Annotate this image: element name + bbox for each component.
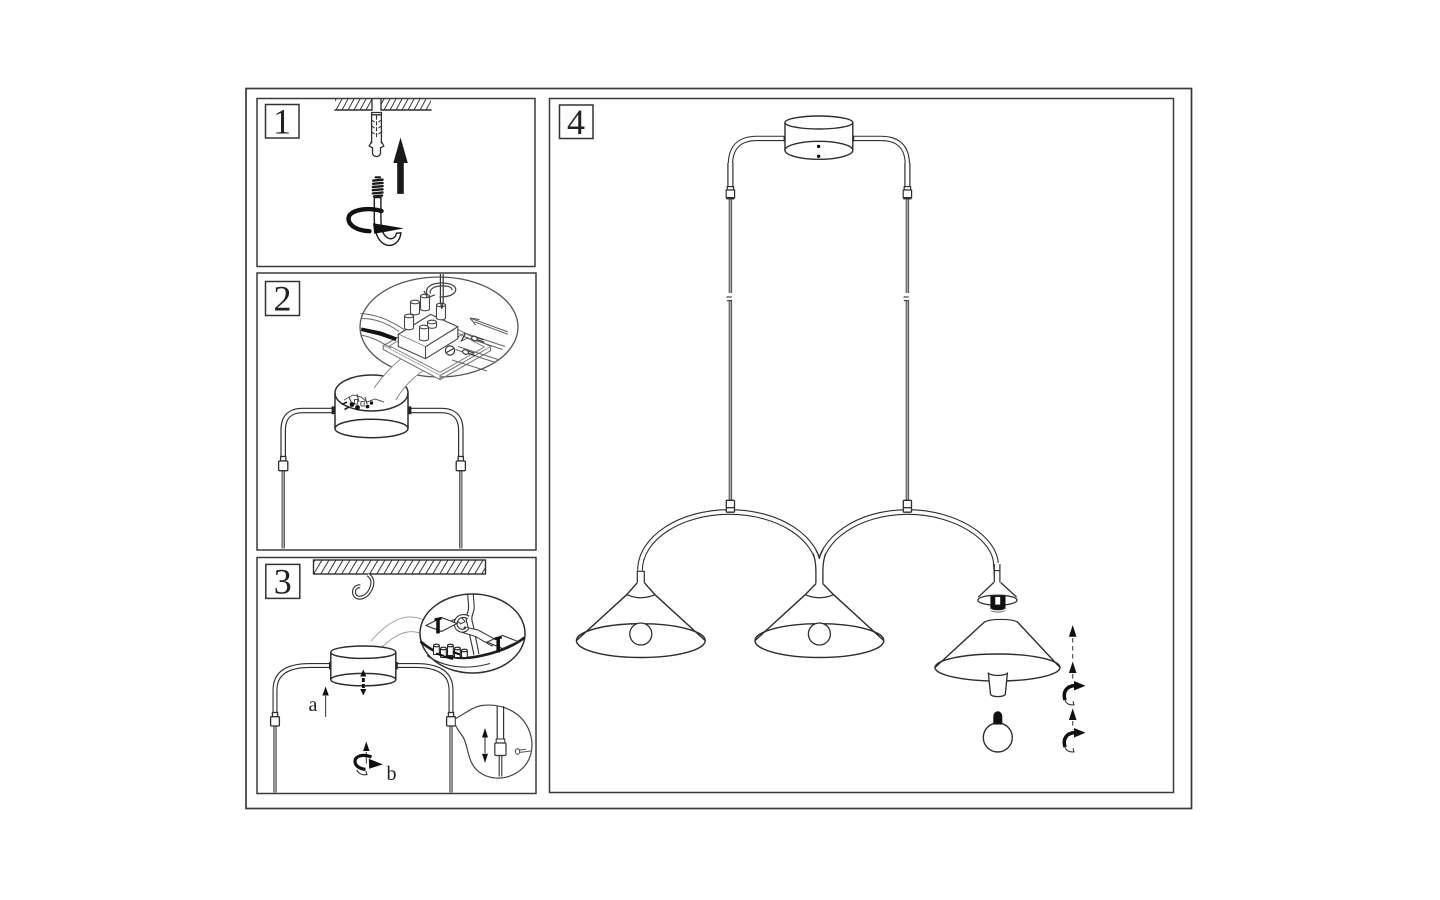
svg-text:a: a — [309, 694, 318, 716]
svg-text:1: 1 — [273, 102, 291, 142]
svg-text:4: 4 — [567, 102, 585, 142]
svg-text:2: 2 — [274, 279, 292, 319]
svg-text:b: b — [387, 763, 397, 785]
svg-text:3: 3 — [274, 562, 292, 602]
